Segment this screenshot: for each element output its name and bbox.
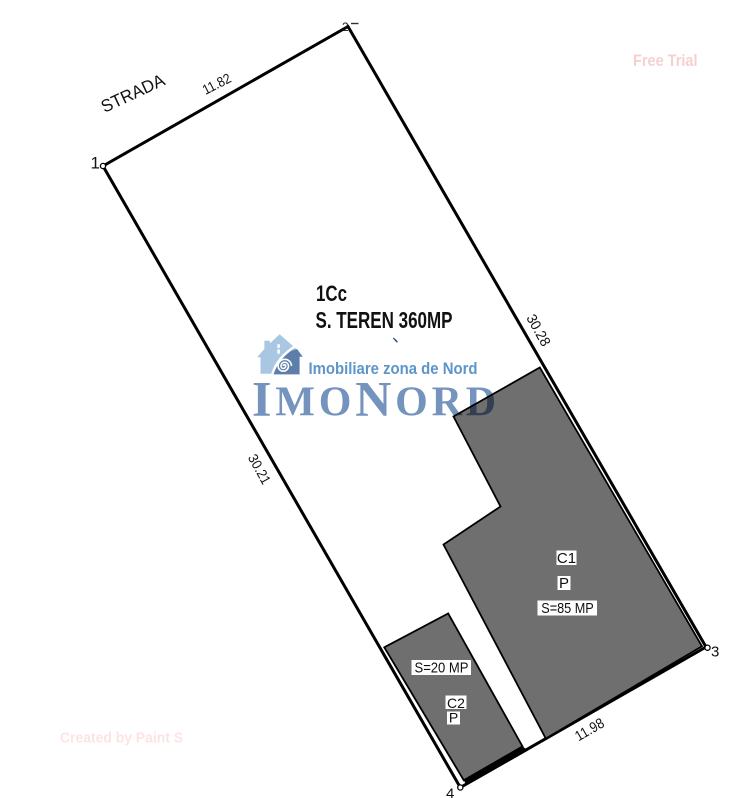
svg-text:4: 4 <box>446 786 454 798</box>
svg-text:P: P <box>559 575 569 592</box>
svg-text:S=20 MP: S=20 MP <box>415 660 469 677</box>
svg-text:2: 2 <box>342 20 349 34</box>
svg-text:1Cc: 1Cc <box>316 281 347 306</box>
svg-text:S=85 MP: S=85 MP <box>541 600 594 617</box>
svg-text:S. TEREN 360MP: S. TEREN 360MP <box>316 307 453 333</box>
svg-text:C1: C1 <box>557 550 576 567</box>
svg-text:3: 3 <box>711 644 719 661</box>
svg-text:IMONORD: IMONORD <box>252 371 500 427</box>
svg-text:Created by Paint S: Created by Paint S <box>60 731 183 747</box>
svg-text:1: 1 <box>91 154 100 173</box>
svg-text:P: P <box>449 710 458 726</box>
svg-text:Free Trial: Free Trial <box>633 51 698 70</box>
